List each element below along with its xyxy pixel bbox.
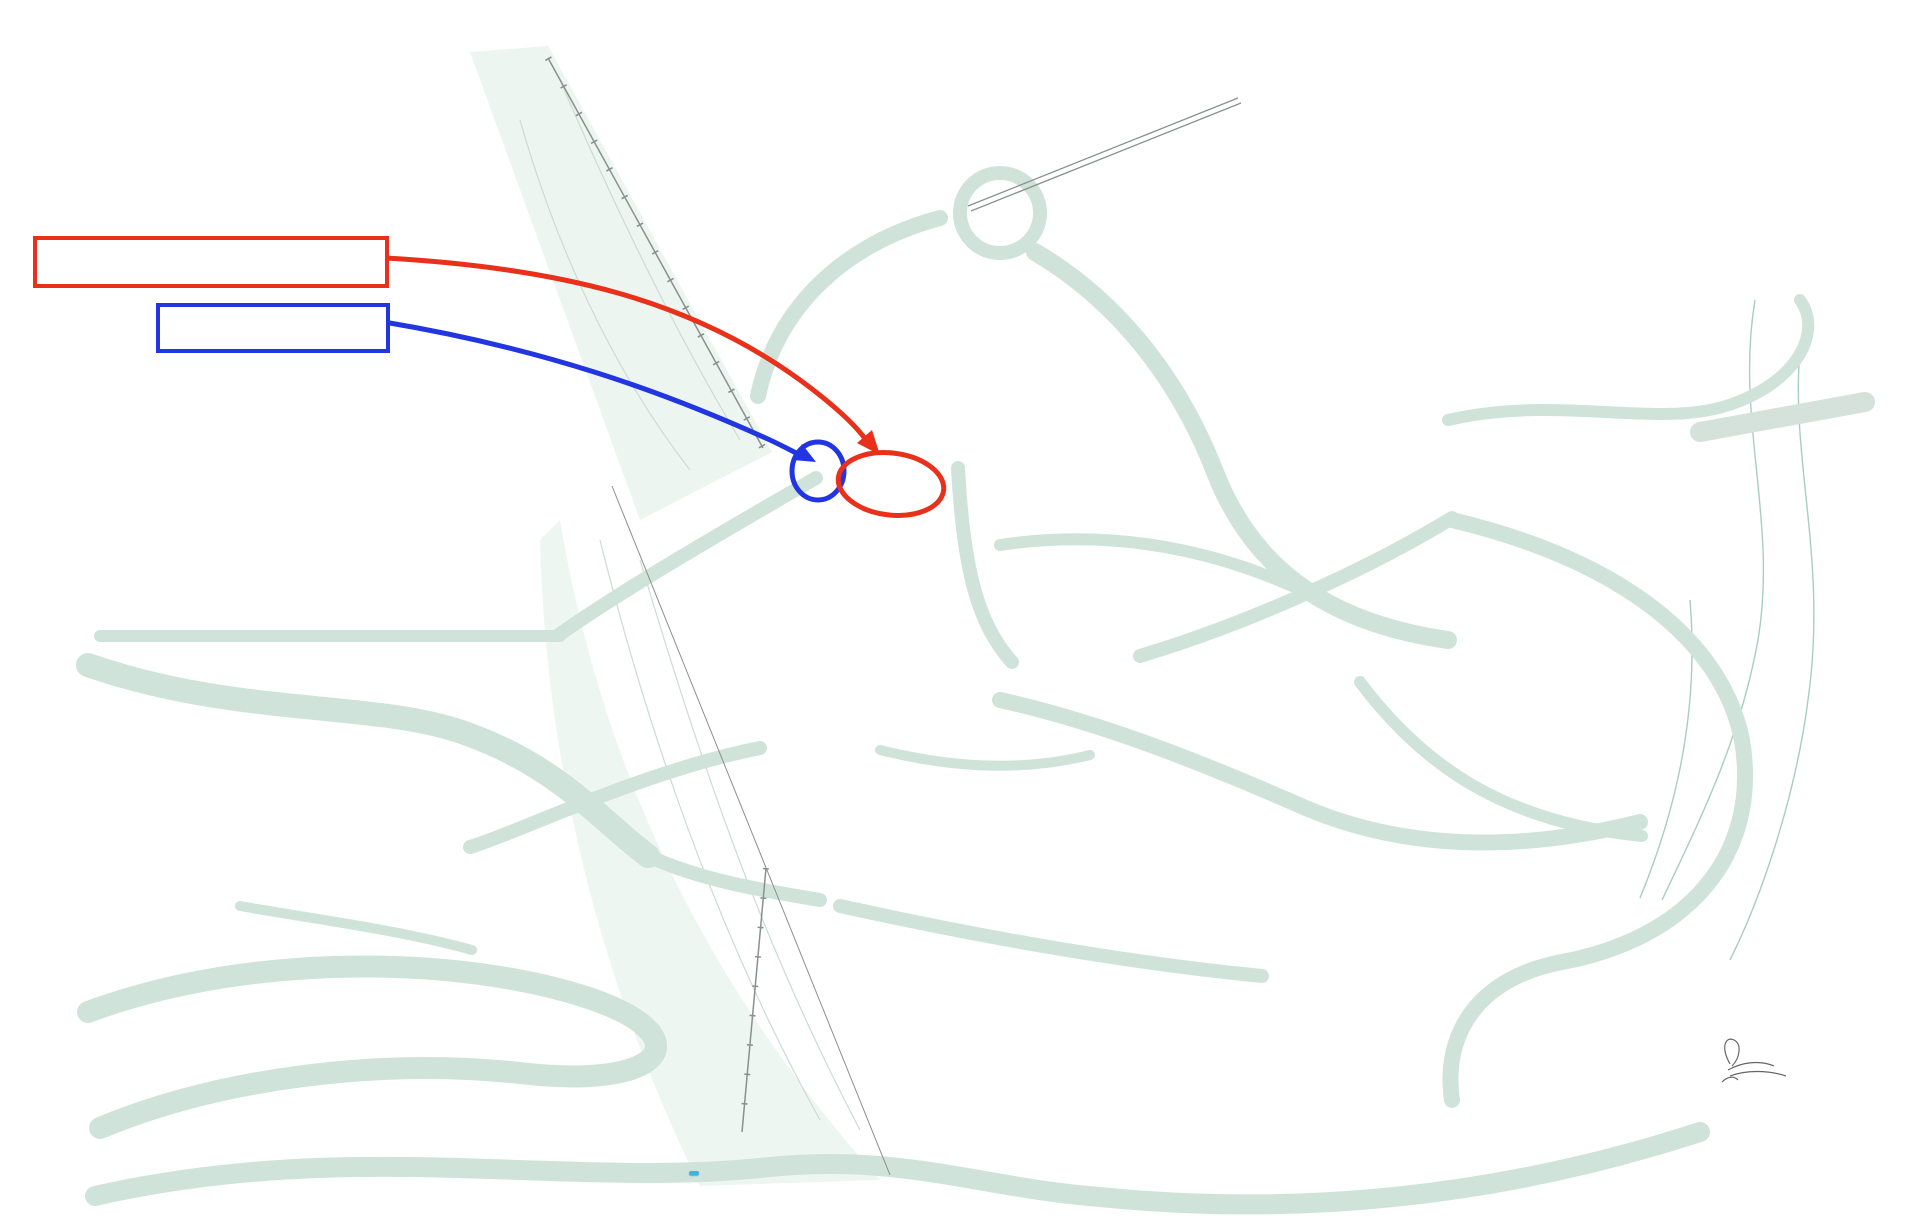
resort-map bbox=[0, 0, 1920, 1221]
callout-residence-la-menandiere bbox=[33, 236, 389, 288]
callouts-layer bbox=[0, 0, 1920, 1221]
callout-arret-telecentre bbox=[156, 303, 390, 353]
